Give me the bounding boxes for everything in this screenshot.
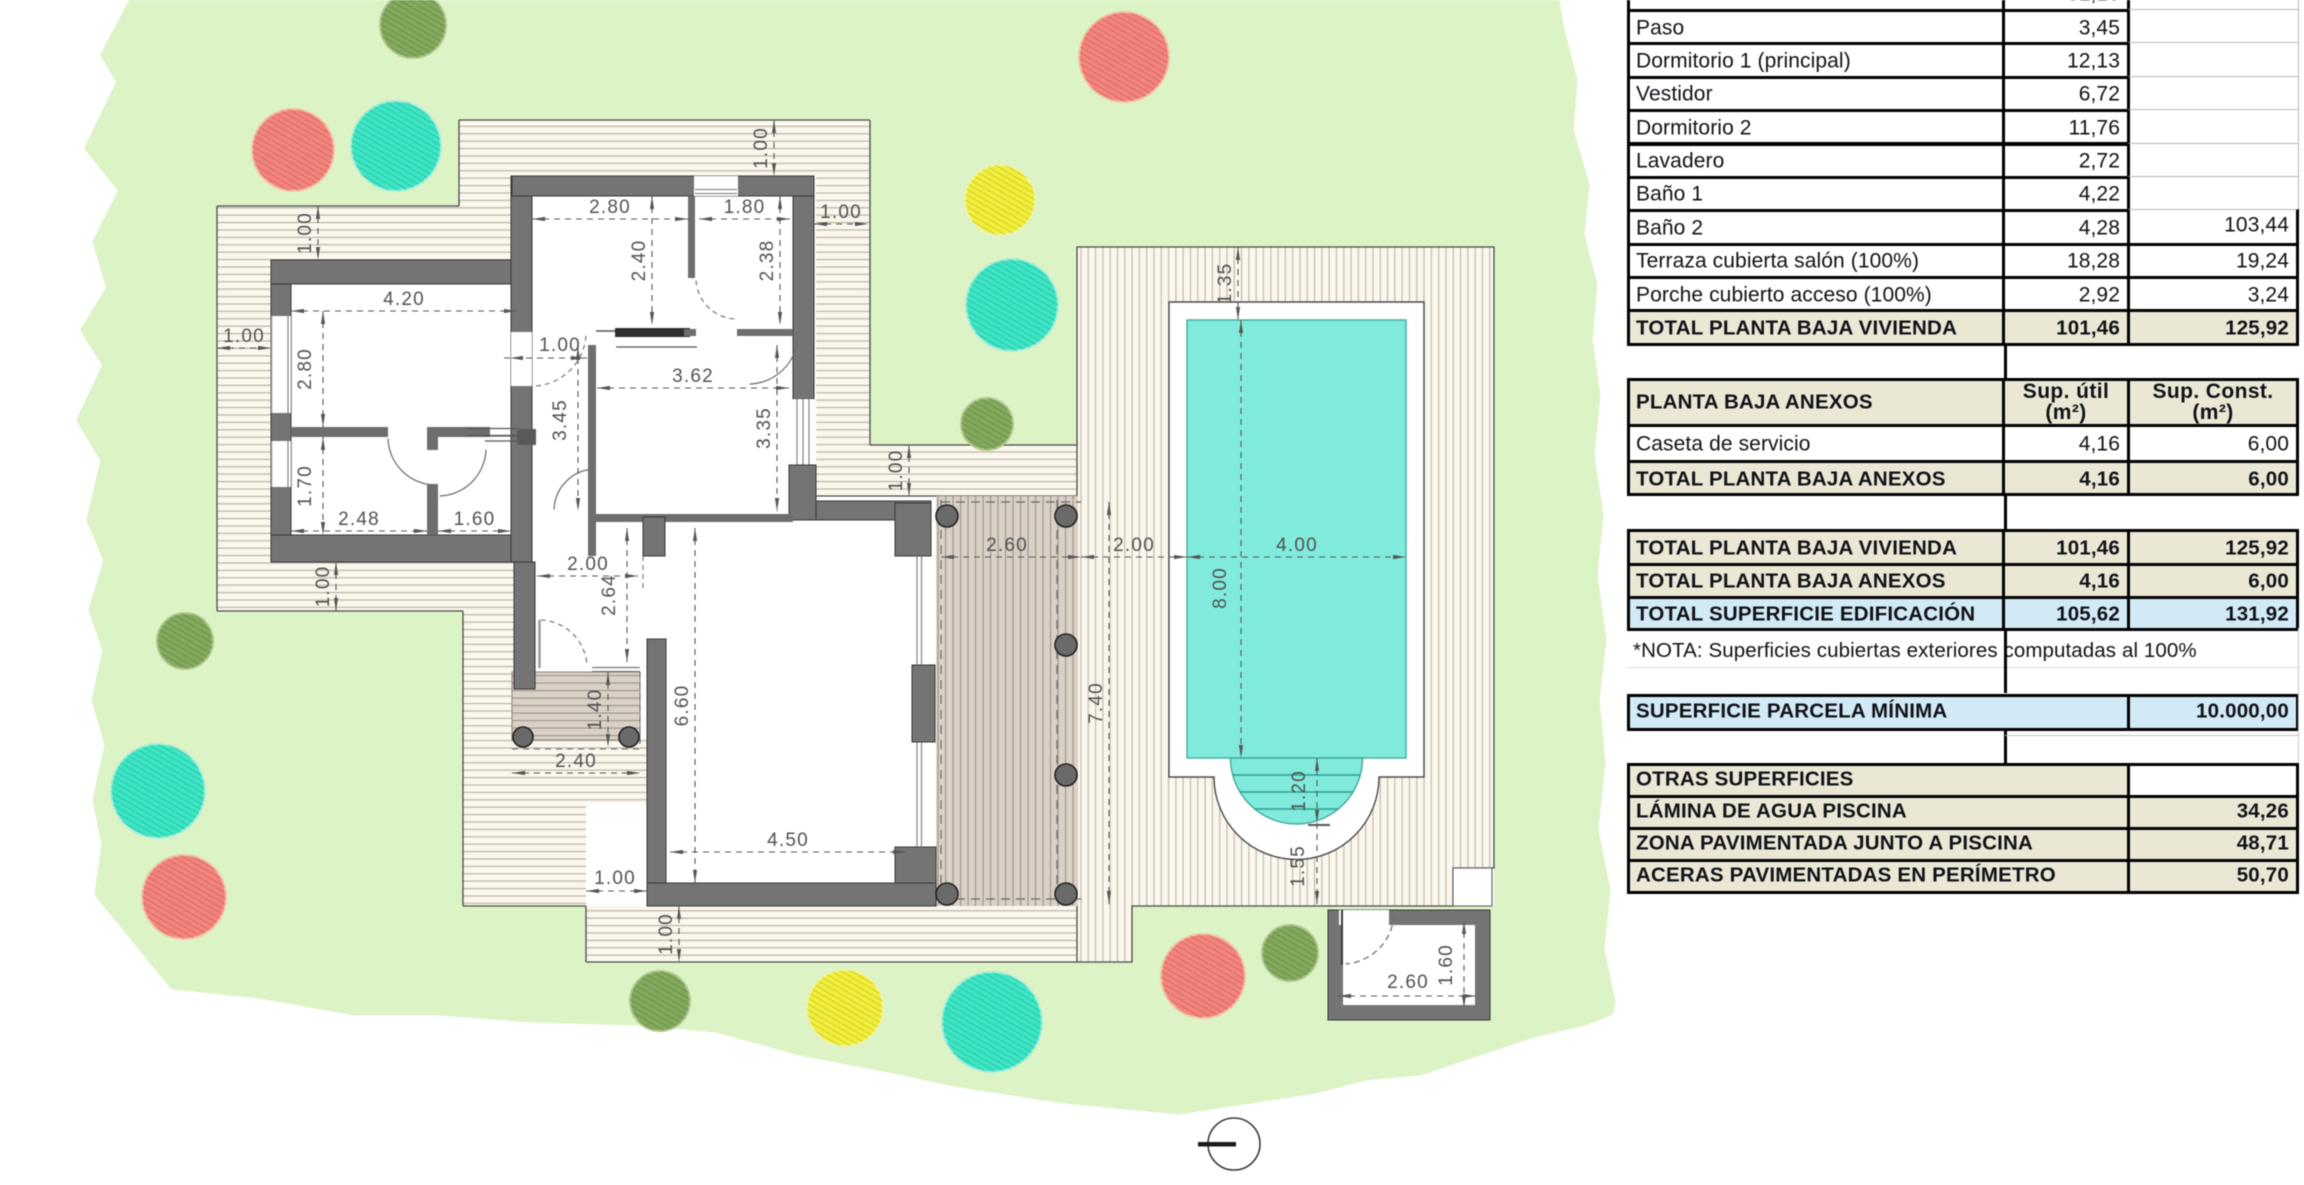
svg-text:1.00: 1.00 xyxy=(820,202,862,223)
svg-text:1.35: 1.35 xyxy=(1215,263,1236,305)
svg-text:2.80: 2.80 xyxy=(295,348,316,390)
svg-text:2.48: 2.48 xyxy=(338,509,380,530)
svg-text:2.40: 2.40 xyxy=(555,751,597,772)
svg-text:1.00: 1.00 xyxy=(313,566,334,608)
svg-text:1.20: 1.20 xyxy=(1289,770,1310,812)
svg-text:2.00: 2.00 xyxy=(1113,535,1155,556)
svg-text:1.40: 1.40 xyxy=(585,689,606,731)
svg-text:1.70: 1.70 xyxy=(295,465,316,507)
svg-text:6.60: 6.60 xyxy=(672,685,693,727)
svg-text:1.80: 1.80 xyxy=(724,197,766,218)
svg-text:8.00: 8.00 xyxy=(1210,567,1231,609)
svg-text:4.20: 4.20 xyxy=(383,289,425,310)
svg-text:1.00: 1.00 xyxy=(539,335,581,356)
svg-text:1.00: 1.00 xyxy=(295,212,316,254)
svg-text:2.80: 2.80 xyxy=(589,197,631,218)
svg-text:1.60: 1.60 xyxy=(454,509,496,530)
svg-text:2.60: 2.60 xyxy=(986,535,1028,556)
svg-text:4.00: 4.00 xyxy=(1276,535,1318,556)
svg-text:2.00: 2.00 xyxy=(567,554,609,575)
svg-text:3.35: 3.35 xyxy=(754,407,775,449)
svg-text:1.00: 1.00 xyxy=(751,127,772,169)
svg-text:1.00: 1.00 xyxy=(656,913,677,955)
svg-text:7.40: 7.40 xyxy=(1086,682,1107,724)
svg-text:2.64: 2.64 xyxy=(599,574,620,616)
svg-text:4.50: 4.50 xyxy=(767,830,809,851)
svg-text:1.00: 1.00 xyxy=(594,868,636,889)
svg-text:2.38: 2.38 xyxy=(757,240,778,282)
svg-text:1.55: 1.55 xyxy=(1288,845,1309,887)
svg-text:2.40: 2.40 xyxy=(629,240,650,282)
svg-text:3.62: 3.62 xyxy=(672,366,714,387)
svg-text:3.45: 3.45 xyxy=(550,399,571,441)
svg-text:1.60: 1.60 xyxy=(1436,944,1457,986)
svg-text:2.60: 2.60 xyxy=(1387,972,1429,993)
svg-text:1.00: 1.00 xyxy=(223,326,265,347)
svg-text:1.00: 1.00 xyxy=(886,450,907,492)
